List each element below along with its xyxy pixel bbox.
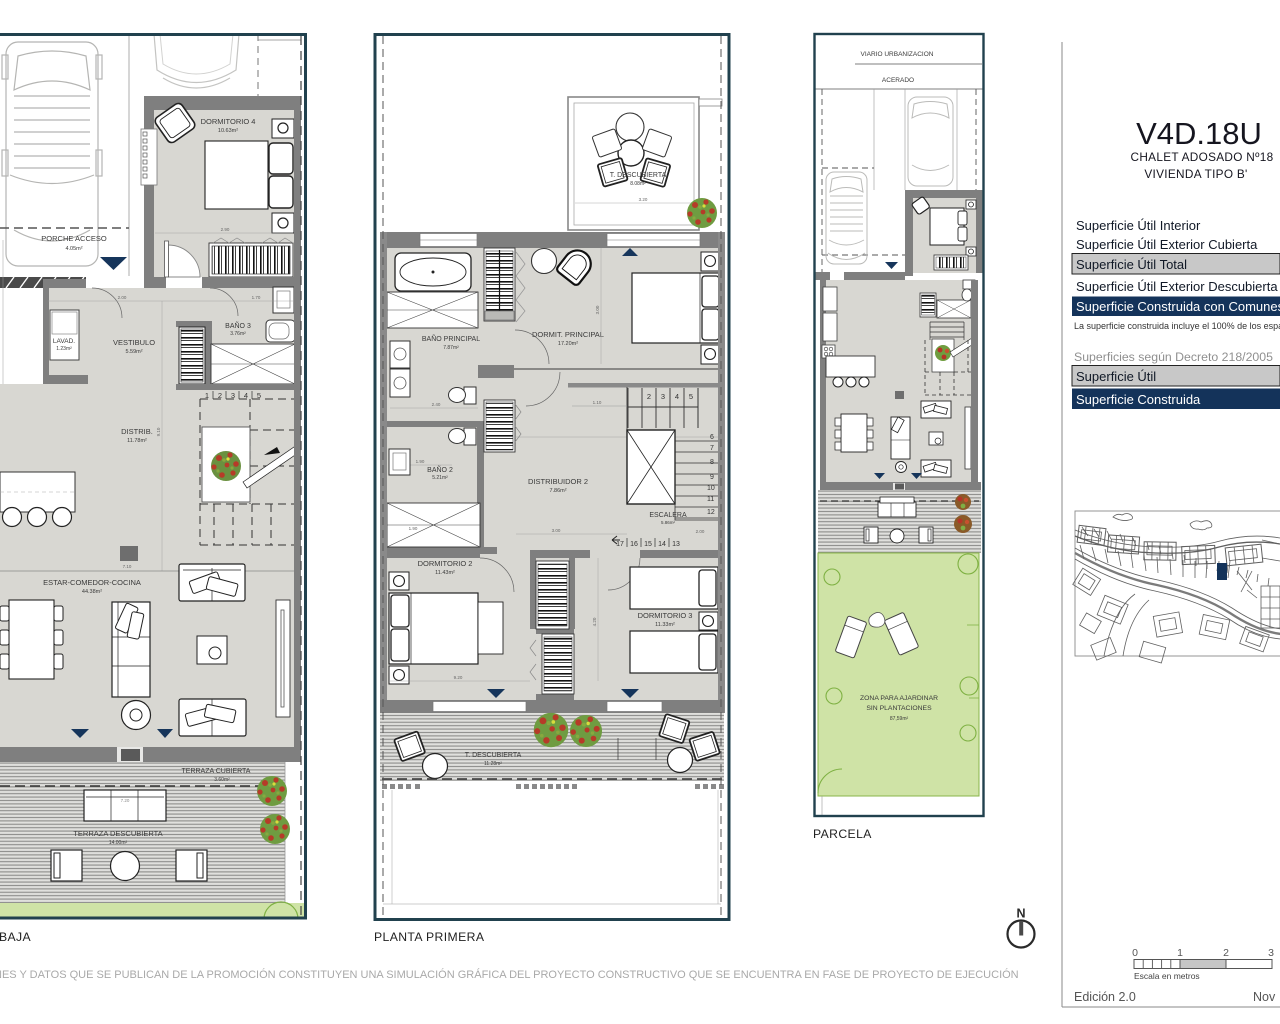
svg-text:T. DESCUBIERTA: T. DESCUBIERTA: [465, 752, 522, 759]
svg-text:3: 3: [1268, 947, 1274, 959]
svg-text:VIVIENDA TIPO B': VIVIENDA TIPO B': [1144, 167, 1247, 181]
svg-text:44.38m²: 44.38m²: [82, 589, 102, 595]
svg-text:4: 4: [675, 392, 679, 401]
svg-text:11: 11: [707, 496, 714, 503]
svg-text:8: 8: [710, 459, 714, 466]
svg-text:11.33m²: 11.33m²: [655, 622, 675, 628]
svg-text:T. DESCUBIERTA: T. DESCUBIERTA: [610, 172, 667, 179]
svg-text:BAJA: BAJA: [0, 930, 32, 944]
svg-text:PARCELA: PARCELA: [813, 827, 872, 841]
svg-text:7.10: 7.10: [123, 564, 132, 569]
svg-text:Superficie Construida: Superficie Construida: [1076, 392, 1201, 407]
svg-text:DORMITORIO 2: DORMITORIO 2: [418, 559, 473, 568]
svg-text:LAVAD.: LAVAD.: [53, 338, 75, 345]
svg-text:2.00: 2.00: [118, 295, 127, 300]
svg-text:3.20: 3.20: [639, 197, 648, 202]
svg-text:VIARIO URBANIZACION: VIARIO URBANIZACION: [861, 51, 934, 58]
svg-text:10: 10: [707, 485, 715, 492]
svg-text:3.76m²: 3.76m²: [230, 331, 246, 337]
svg-text:2.40: 2.40: [432, 402, 441, 407]
svg-text:ZONA PARA AJARDINAR: ZONA PARA AJARDINAR: [860, 695, 938, 702]
svg-text:3: 3: [661, 392, 665, 401]
svg-text:VESTIBULO: VESTIBULO: [113, 338, 155, 347]
svg-text:Superficie Construida con Comu: Superficie Construida con Comunes: [1076, 299, 1280, 314]
svg-text:3.00: 3.00: [552, 528, 561, 533]
svg-text:BAÑO 2: BAÑO 2: [427, 465, 453, 474]
svg-text:2: 2: [1223, 947, 1229, 959]
svg-text:11.28m²: 11.28m²: [484, 761, 502, 767]
svg-text:PORCHE ACCESO: PORCHE ACCESO: [41, 234, 107, 243]
svg-text:3.00: 3.00: [595, 305, 600, 314]
svg-text:7: 7: [710, 445, 714, 452]
svg-text:Superficie Útil Exterior Descu: Superficie Útil Exterior Descubierta: [1076, 279, 1278, 294]
svg-text:Escala en metros: Escala en metros: [1134, 971, 1200, 981]
svg-text:TERRAZA CUBIERTA: TERRAZA CUBIERTA: [182, 768, 251, 775]
svg-text:8.08m²: 8.08m²: [630, 181, 646, 187]
svg-text:12: 12: [707, 509, 715, 516]
svg-text:1.90: 1.90: [409, 526, 418, 531]
svg-text:La superficie construida inclu: La superficie construida incluye el 100%…: [1074, 321, 1280, 331]
svg-text:1.10: 1.10: [593, 400, 602, 405]
svg-text:2.90: 2.90: [221, 227, 230, 232]
svg-text:1.90: 1.90: [416, 459, 425, 464]
svg-text:BAÑO PRINCIPAL: BAÑO PRINCIPAL: [422, 334, 480, 343]
svg-text:Superficie Útil: Superficie Útil: [1076, 369, 1156, 384]
svg-text:5.21m²: 5.21m²: [432, 475, 448, 481]
svg-text:5: 5: [689, 392, 693, 401]
svg-text:PLANTA PRIMERA: PLANTA PRIMERA: [374, 930, 485, 944]
svg-text:Superficie Útil Total: Superficie Útil Total: [1076, 257, 1187, 272]
svg-text:14: 14: [658, 541, 666, 548]
svg-text:9.10: 9.10: [156, 427, 161, 436]
svg-text:10.63m²: 10.63m²: [218, 128, 238, 134]
svg-text:13: 13: [672, 541, 680, 548]
svg-text:1.70: 1.70: [252, 295, 261, 300]
svg-text:4.20: 4.20: [592, 617, 597, 626]
svg-text:V4D.18U: V4D.18U: [1136, 116, 1262, 151]
svg-text:CHALET ADOSADO Nº18: CHALET ADOSADO Nº18: [1131, 150, 1274, 164]
svg-text:SIN PLANTACIONES: SIN PLANTACIONES: [866, 705, 932, 712]
svg-text:14.00m²: 14.00m²: [109, 840, 128, 846]
svg-text:0: 0: [1132, 947, 1138, 959]
svg-text:7.87m²: 7.87m²: [443, 345, 459, 351]
svg-text:7.20: 7.20: [121, 798, 130, 803]
svg-text:ACERADO: ACERADO: [882, 77, 914, 84]
svg-text:DORMITORIO 3: DORMITORIO 3: [638, 611, 693, 620]
svg-text:BAÑO 3: BAÑO 3: [225, 321, 251, 330]
svg-text:ESCALERA: ESCALERA: [649, 512, 687, 519]
svg-text:Edición 2.0: Edición 2.0: [1074, 990, 1136, 1004]
svg-text:Superficie Útil Exterior Cubie: Superficie Útil Exterior Cubierta: [1076, 237, 1258, 252]
svg-text:DISTRIBUIDOR 2: DISTRIBUIDOR 2: [528, 477, 588, 486]
svg-text:9: 9: [710, 474, 714, 481]
svg-text:16: 16: [630, 541, 638, 548]
svg-text:1: 1: [1177, 947, 1183, 959]
svg-text:Superficie Útil Interior: Superficie Útil Interior: [1076, 218, 1201, 233]
svg-text:15: 15: [644, 541, 652, 548]
svg-text:11.78m²: 11.78m²: [127, 438, 147, 444]
svg-text:NES Y DATOS QUE SE PUBLICAN DE: NES Y DATOS QUE SE PUBLICAN DE LA PROMOC…: [0, 968, 1019, 981]
svg-text:7.86m²: 7.86m²: [549, 488, 566, 494]
svg-text:17: 17: [616, 541, 624, 548]
svg-text:TERRAZA DESCUBIERTA: TERRAZA DESCUBIERTA: [73, 829, 162, 838]
svg-text:1.23m²: 1.23m²: [56, 346, 72, 352]
svg-text:N: N: [1016, 907, 1025, 921]
svg-text:2: 2: [647, 392, 651, 401]
svg-text:6: 6: [710, 434, 714, 441]
svg-text:DISTRIB.: DISTRIB.: [121, 427, 153, 436]
svg-text:ESTAR-COMEDOR-COCINA: ESTAR-COMEDOR-COCINA: [43, 578, 141, 587]
svg-text:5.86m²: 5.86m²: [661, 520, 676, 525]
svg-text:DORMITORIO 4: DORMITORIO 4: [201, 117, 256, 126]
svg-text:2.00: 2.00: [696, 529, 705, 534]
svg-text:4.05m²: 4.05m²: [65, 246, 82, 252]
svg-text:11.43m²: 11.43m²: [435, 570, 455, 576]
svg-text:9.20: 9.20: [454, 675, 463, 680]
svg-text:Superficies según Decreto 218/: Superficies según Decreto 218/2005: [1074, 350, 1273, 364]
svg-text:87,59m²: 87,59m²: [890, 716, 909, 722]
svg-text:3.60m²: 3.60m²: [214, 777, 230, 783]
svg-text:17.20m²: 17.20m²: [558, 341, 578, 347]
svg-text:Nov: Nov: [1253, 990, 1276, 1004]
svg-text:DORMIT. PRINCIPAL: DORMIT. PRINCIPAL: [532, 330, 604, 339]
svg-text:5.59m²: 5.59m²: [125, 349, 142, 355]
